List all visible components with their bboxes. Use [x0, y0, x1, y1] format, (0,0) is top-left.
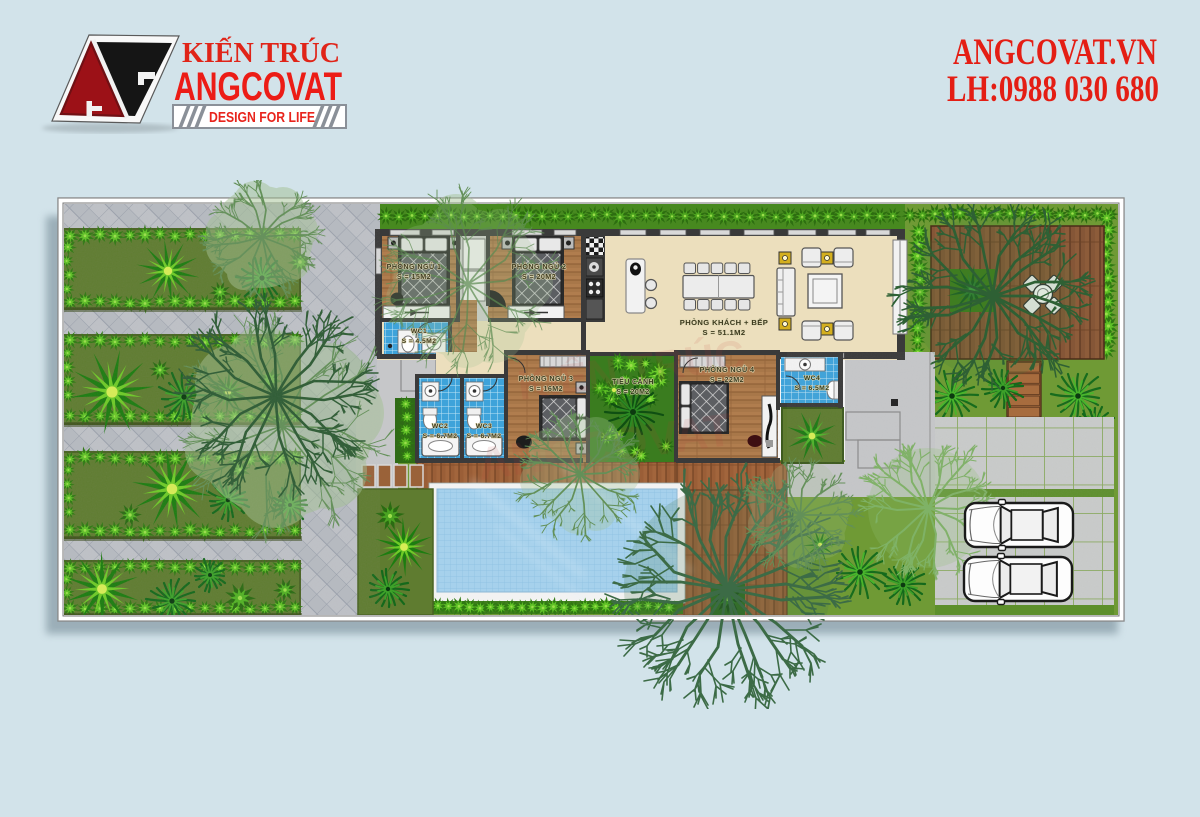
svg-text:WC4: WC4	[804, 375, 820, 382]
svg-text:DESIGN FOR LIFE: DESIGN FOR LIFE	[209, 110, 315, 126]
svg-text:ANGCOVAT.VN: ANGCOVAT.VN	[953, 32, 1157, 73]
svg-text:PHÒNG NGỦ 2: PHÒNG NGỦ 2	[512, 262, 567, 271]
svg-text:LH:0988 030 680: LH:0988 030 680	[947, 69, 1159, 110]
svg-text:S = 4.5M2: S = 4.5M2	[402, 338, 437, 345]
svg-text:S = 22M2: S = 22M2	[710, 375, 744, 384]
svg-text:ANGCOVAT: ANGCOVAT	[174, 65, 342, 109]
svg-text:TIỂU CẢNH: TIỂU CẢNH	[612, 377, 654, 386]
svg-text:WC3: WC3	[476, 423, 492, 430]
svg-text:PHÒNG NGỦ 4: PHÒNG NGỦ 4	[700, 365, 755, 374]
svg-text:WC2: WC2	[432, 423, 448, 430]
svg-text:S = 20M2: S = 20M2	[616, 389, 649, 396]
svg-text:S = 6.5M2: S = 6.5M2	[795, 385, 830, 392]
svg-text:S = 16M2: S = 16M2	[529, 384, 563, 393]
svg-text:S = 20M2: S = 20M2	[522, 272, 556, 281]
svg-text:S = 15M2: S = 15M2	[397, 272, 431, 281]
svg-text:S = 6.7M2: S = 6.7M2	[423, 433, 458, 440]
svg-text:WC1: WC1	[411, 328, 427, 335]
svg-text:PHÒNG NGỦ 3: PHÒNG NGỦ 3	[519, 374, 574, 383]
svg-text:PHÒNG KHÁCH + BẾP: PHÒNG KHÁCH + BẾP	[680, 317, 768, 327]
svg-text:S = 51.1M2: S = 51.1M2	[702, 328, 745, 337]
svg-text:PHÒNG NGỦ 1: PHÒNG NGỦ 1	[387, 262, 442, 271]
svg-text:S = 6.7M2: S = 6.7M2	[467, 433, 502, 440]
